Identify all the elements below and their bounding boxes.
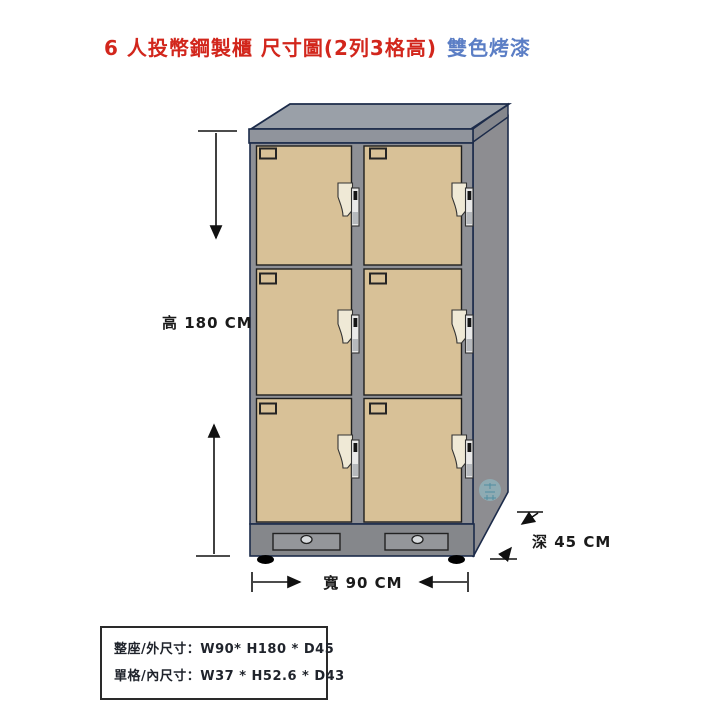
name-card-slot: [370, 149, 386, 159]
depth-dimension-label: 深 45 CM: [532, 531, 611, 552]
width-dimension-label: 寬 90 CM: [318, 572, 408, 593]
locker-door: [257, 269, 352, 395]
drawer-knob: [412, 536, 423, 544]
height-dimension: [196, 131, 237, 556]
spec-row-inner-size: 單格/內尺寸：W37 * H52.6 * D43: [114, 663, 326, 690]
dim-arrow-down-left: [522, 513, 538, 524]
leveling-foot: [257, 555, 274, 564]
cabinet-top-front-face: [249, 129, 473, 143]
locker-door: [257, 399, 352, 523]
height-dimension-label: 高 180 CM: [162, 312, 253, 333]
drawer-knob: [301, 536, 312, 544]
name-card-slot: [260, 149, 276, 159]
locker-door: [364, 146, 462, 265]
name-card-slot: [260, 404, 276, 414]
leveling-foot: [448, 555, 465, 564]
cabinet-top-surface: [251, 104, 509, 129]
locker-door: [364, 269, 462, 395]
dim-arrow-up-right: [503, 548, 511, 558]
locker-door: [364, 399, 462, 523]
locker-diagram: [0, 0, 719, 720]
name-card-slot: [260, 274, 276, 284]
name-card-slot: [370, 404, 386, 414]
spec-row-outer-size: 整座/外尺寸：W90* H180 * D45: [114, 636, 326, 663]
name-card-slot: [370, 274, 386, 284]
spec-table: 整座/外尺寸：W90* H180 * D45 單格/內尺寸：W37 * H52.…: [100, 626, 328, 700]
locker-door: [257, 146, 352, 265]
watermark-seal: [479, 479, 501, 501]
